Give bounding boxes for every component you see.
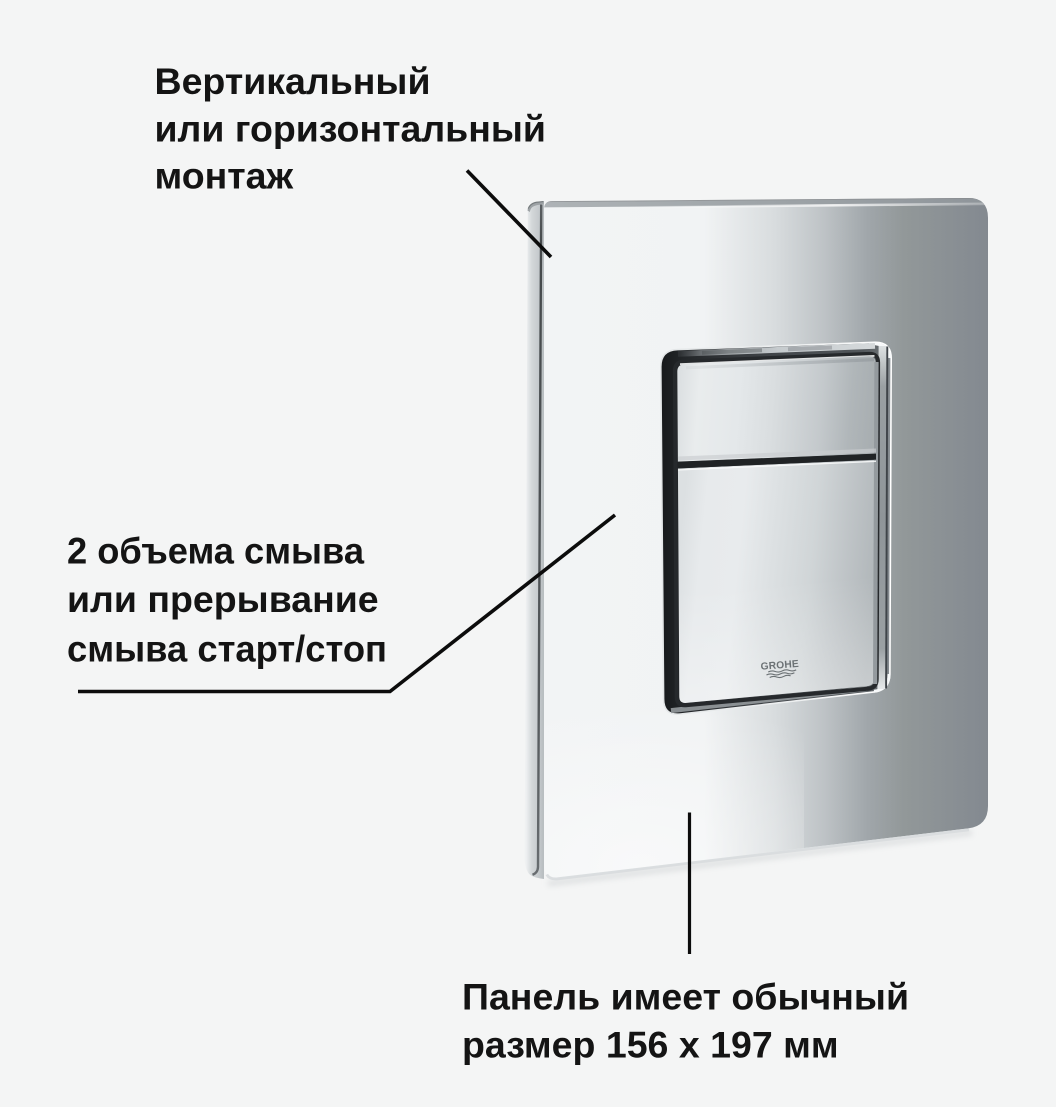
svg-text:или горизонтальный: или горизонтальный	[155, 108, 546, 150]
svg-text:смыва старт/стоп: смыва старт/стоп	[67, 628, 387, 670]
svg-text:монтаж: монтаж	[155, 155, 294, 197]
svg-text:Панель имеет обычный: Панель имеет обычный	[462, 976, 909, 1018]
svg-text:Вертикальный: Вертикальный	[155, 60, 431, 102]
svg-text:2 объема смыва: 2 объема смыва	[67, 530, 365, 572]
svg-text:или прерывание: или прерывание	[67, 578, 379, 620]
svg-text:размер 156 x 197 мм: размер 156 x 197 мм	[462, 1024, 839, 1066]
